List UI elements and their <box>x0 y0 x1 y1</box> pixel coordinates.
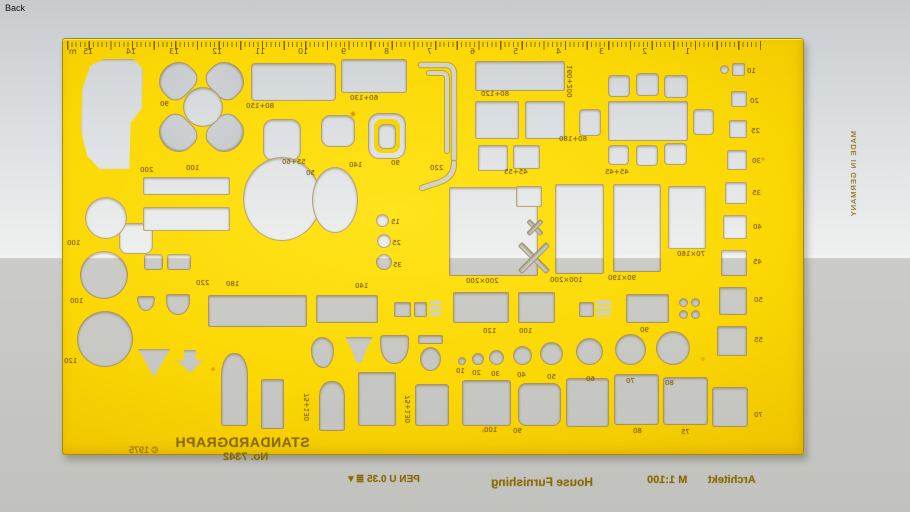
cutout-shape <box>138 349 170 377</box>
stencil-label: 140 <box>349 162 362 169</box>
stencil-label: 90 <box>513 428 522 435</box>
cutout-shape <box>608 75 630 97</box>
stencil-label: 220 <box>196 280 209 287</box>
stencil-label: 100 <box>484 427 497 434</box>
stencil-label: 90 <box>391 160 400 167</box>
cutout-shape <box>475 61 565 91</box>
ruler-number: 9 <box>341 48 346 56</box>
stencil-label: 80+180 <box>559 136 587 143</box>
stencil-label: 25 <box>751 128 760 135</box>
cutout-shape <box>378 124 396 149</box>
stencil-label: 200 <box>140 167 153 174</box>
stencil-label: 10 <box>456 368 465 375</box>
cutout-shape <box>596 300 611 318</box>
scale-text: M 1:100 <box>647 474 687 486</box>
cutout-shape <box>85 197 127 239</box>
ruler-number: 4 <box>556 48 561 56</box>
ruler-unit-label: m <box>69 48 77 56</box>
cutout-shape <box>420 347 441 371</box>
series-title-text: House Furnishing <box>491 475 593 489</box>
cutout-shape <box>183 87 223 127</box>
stencil-label: 180 <box>226 281 239 288</box>
cutout-shape <box>732 63 745 76</box>
stencil-label: 100 <box>186 165 199 172</box>
cutout-shape <box>729 120 747 138</box>
cutout-shape <box>579 302 594 317</box>
stencil-label: 100×200 <box>550 277 583 284</box>
ruler-number: 10 <box>298 48 308 56</box>
cutout-shape <box>540 342 563 365</box>
pen-size-text: PEN U 0.35 ≣▼ <box>346 474 420 485</box>
cutout-shape <box>77 311 133 367</box>
model-viewport[interactable]: Back m 151413121110987654321 9080+15055+… <box>0 0 910 512</box>
cutout-shape <box>525 217 545 237</box>
cutout-shape <box>144 254 163 270</box>
cutout-shape <box>712 387 748 427</box>
cutout-shape <box>376 254 392 270</box>
cutout-shape <box>167 254 191 270</box>
cutout-shape <box>394 302 411 317</box>
cutout-shape <box>345 337 373 363</box>
cutout-shape <box>664 75 688 98</box>
ruler-number: 11 <box>255 48 265 56</box>
cutout-shape <box>614 374 659 425</box>
cutout-shape <box>679 298 688 307</box>
cutout-shape <box>418 335 443 344</box>
stencil-label: 35 <box>393 262 402 269</box>
stencil-label: 120 <box>483 328 496 335</box>
cutout-shape <box>319 381 345 431</box>
ruler-number: 5 <box>513 48 518 56</box>
stencil-label: 70×160 <box>677 251 705 258</box>
stencil-label: 45+55 <box>504 169 528 176</box>
made-in-text: MADE IN GERMANY <box>849 131 858 217</box>
ruler-number: 6 <box>470 48 475 56</box>
cutout-shape <box>727 150 747 170</box>
stencil-label: 60 <box>586 376 595 383</box>
stencil-label: 10 <box>747 68 756 75</box>
cutout-shape <box>608 145 629 165</box>
cutout-shape <box>311 337 334 368</box>
ruler-number: 8 <box>384 48 389 56</box>
cutout-shape <box>81 59 143 169</box>
stencil-label: 90 <box>640 327 649 334</box>
cutout-shape <box>656 331 690 365</box>
cutout-shape <box>472 353 484 365</box>
cutout-shape <box>719 287 747 315</box>
cutout-shape <box>143 207 230 231</box>
stencil-label: 80+120 <box>481 91 509 98</box>
stencil-label: 80+150 <box>246 103 274 110</box>
stencil-label: 20 <box>750 98 759 105</box>
stencil-label: 90 <box>160 101 169 108</box>
cutout-shape <box>475 101 519 139</box>
cutout-shape <box>717 326 747 356</box>
ruler-number: 14 <box>126 48 136 56</box>
cutout-shape <box>720 65 729 74</box>
cutout-shape <box>691 310 700 319</box>
stencil-label: 220 <box>430 165 443 172</box>
cutout-shape <box>636 73 659 96</box>
cutout-shape <box>636 145 658 166</box>
cutout-shape <box>691 298 700 307</box>
stencil-label: 200×200 <box>466 278 499 285</box>
ruler-number: 3 <box>599 48 604 56</box>
cutout-shape <box>626 294 669 323</box>
cutout-shape <box>489 350 504 365</box>
cutout-shape <box>723 215 747 239</box>
cutout-shape <box>721 250 747 276</box>
brand-text: STANDARDGRAPH <box>175 434 310 450</box>
ruler-number: 15 <box>83 48 93 56</box>
cutout-shape <box>513 346 532 365</box>
stencil-label: 100 <box>70 298 83 305</box>
cutout-shape <box>518 383 561 426</box>
stencil-label: 80 <box>665 380 674 387</box>
cutout-shape <box>80 251 128 299</box>
stencil-label: 20 <box>472 370 481 377</box>
stencil-label: 70 <box>754 412 763 419</box>
ruler-number: 7 <box>427 48 432 56</box>
stencil-label: 75+130 <box>405 395 412 423</box>
stencil-label: 50 <box>547 374 556 381</box>
stencil-label: 45 <box>753 259 762 266</box>
cutout-shape <box>725 182 747 204</box>
cutout-shape <box>321 115 355 147</box>
cutout-shape <box>518 292 555 323</box>
cutout-shape <box>312 167 358 233</box>
cutout-shape <box>341 59 407 93</box>
stencil-label: 30 <box>752 158 761 165</box>
model-number-text: No. 7342 <box>223 451 268 463</box>
cutout-shape <box>668 186 706 249</box>
cutout-shape <box>376 214 389 227</box>
stencil-label: 75+130 <box>304 393 311 421</box>
cutout-shape <box>414 302 427 317</box>
stencil-label: 55+60 <box>282 159 306 166</box>
stencil-label: 50 <box>306 170 315 177</box>
cutout-shape <box>555 184 604 274</box>
cutout-shape <box>377 234 391 248</box>
cutout-shape <box>566 378 609 427</box>
cutout-shape <box>579 109 601 136</box>
cutout-shape <box>263 119 301 161</box>
cutout-shape <box>137 296 155 311</box>
cutout-shape <box>177 350 203 373</box>
cutout-shape <box>679 310 688 319</box>
stencil-label: 75 <box>681 429 690 436</box>
cutout-shape <box>693 109 714 135</box>
stencil-label: 100 <box>67 240 80 247</box>
stencil-template[interactable]: m 151413121110987654321 9080+15055+60506… <box>62 38 804 455</box>
cutout-shape <box>316 295 378 323</box>
ruler-number: 1 <box>685 48 690 56</box>
cutout-shape <box>380 335 409 364</box>
cutout-shape <box>430 301 441 318</box>
cutout-shape <box>453 292 509 323</box>
stencil-label: 55 <box>754 337 763 344</box>
cutout-shape <box>261 379 284 429</box>
cutout-shape <box>458 357 466 365</box>
stencil-label: 90×190 <box>608 275 636 282</box>
stencil-label: 45+45 <box>605 169 629 176</box>
cutout-shape <box>613 184 661 272</box>
stencil-label: 40 <box>517 372 526 379</box>
cutout-shape <box>525 101 565 139</box>
ruler-number: 13 <box>169 48 179 56</box>
stencil-label: 80 <box>633 428 642 435</box>
cutout-shape <box>166 294 190 315</box>
cutout-shape <box>221 353 248 426</box>
stencil-label: 35 <box>752 190 761 197</box>
cutout-shape <box>514 241 554 275</box>
cutout-shape <box>358 372 396 426</box>
stencil-label: 120 <box>64 358 77 365</box>
stencil-label: 140 <box>355 283 368 290</box>
stencil-label: 30 <box>491 371 500 378</box>
cutout-shape <box>576 338 603 365</box>
cutout-shape <box>615 334 646 365</box>
cutout-shape <box>731 91 747 107</box>
stencil-label: 70 <box>626 378 635 385</box>
profession-text: Architekt <box>708 474 756 486</box>
cutout-shape <box>516 186 542 207</box>
cutout-shape <box>664 143 687 165</box>
copyright-text: © 1975 <box>129 445 158 455</box>
ruler-number: 12 <box>212 48 222 56</box>
cutout-shape <box>513 145 540 169</box>
cutout-shape <box>208 295 307 327</box>
stencil-label: 50 <box>754 297 763 304</box>
cutout-shape <box>143 177 230 195</box>
stencil-label: 100 <box>519 328 532 335</box>
cutout-shape <box>608 101 688 141</box>
stencil-label: 160+200 <box>567 65 574 98</box>
ruler-number: 2 <box>642 48 647 56</box>
stencil-label: 60+130 <box>350 95 378 102</box>
back-link[interactable]: Back <box>5 3 25 13</box>
cutout-shape <box>251 63 336 101</box>
stencil-label: 25 <box>392 240 401 247</box>
stencil-label: 40 <box>753 224 762 231</box>
cutout-shape <box>415 384 449 426</box>
stencil-label: 15 <box>391 219 400 226</box>
cutout-shape <box>462 380 511 426</box>
